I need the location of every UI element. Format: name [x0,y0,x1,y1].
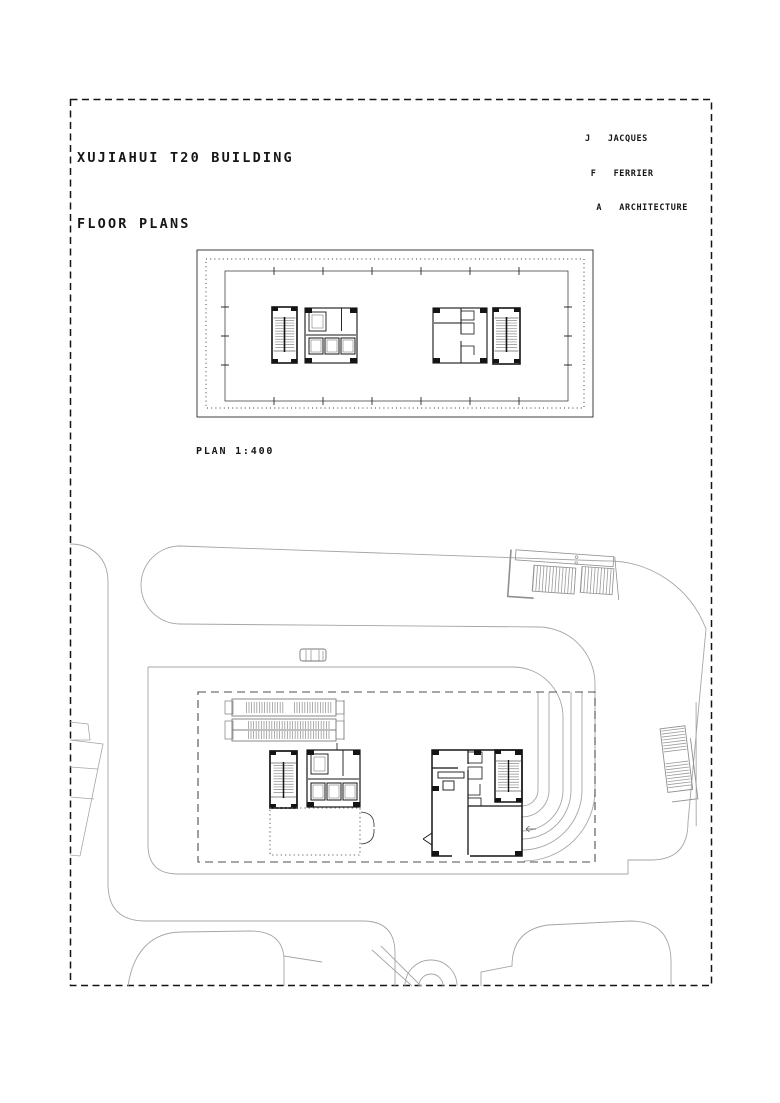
lobby-door-swings [361,812,374,844]
sheet-title-line1: XUJIAHUI T20 BUILDING [77,147,294,169]
drawing-sheet: XUJIAHUI T20 BUILDING FLOOR PLANS J JACQ… [0,0,780,1103]
column-grid-line [225,271,568,401]
south-traffic-islands [128,921,671,986]
firm-logo-block: J JACQUES F FERRIER A ARCHITECTURE [585,111,688,238]
ground-floor-site-plan [70,544,711,986]
facade-mullion-ring [206,259,584,408]
firm-line3: A ARCHITECTURE [585,203,688,215]
firm-line2: F FERRIER [585,169,688,181]
car-icon [300,649,326,661]
adjacent-building-west [70,722,103,856]
stair-core-left [272,307,297,363]
outdoor-stair-east [657,702,711,829]
lobby-glass-line [270,808,360,855]
escalators [225,699,344,741]
elevator-bank [305,308,357,363]
ground-core-left [270,743,374,855]
tower-footprint-dashed [198,692,595,862]
title-block: XUJIAHUI T20 BUILDING FLOOR PLANS [77,103,294,279]
reception-desk [438,772,464,778]
ground-wall-pads [270,750,522,856]
service-core-right [433,308,487,363]
ground-core-right [423,750,536,856]
sheet-title-line2: FLOOR PLANS [77,213,294,235]
site-roads [70,544,706,986]
entry-door-leaves [423,833,432,845]
plan-scale-label: PLAN 1:400 [196,446,274,457]
dropoff-lane-arcs [522,692,582,850]
road-boulevard [141,546,706,874]
firm-line1: J JACQUES [585,134,688,146]
stair-core-right [493,308,520,364]
road-left [70,544,395,986]
building-ground-outline [148,667,594,874]
